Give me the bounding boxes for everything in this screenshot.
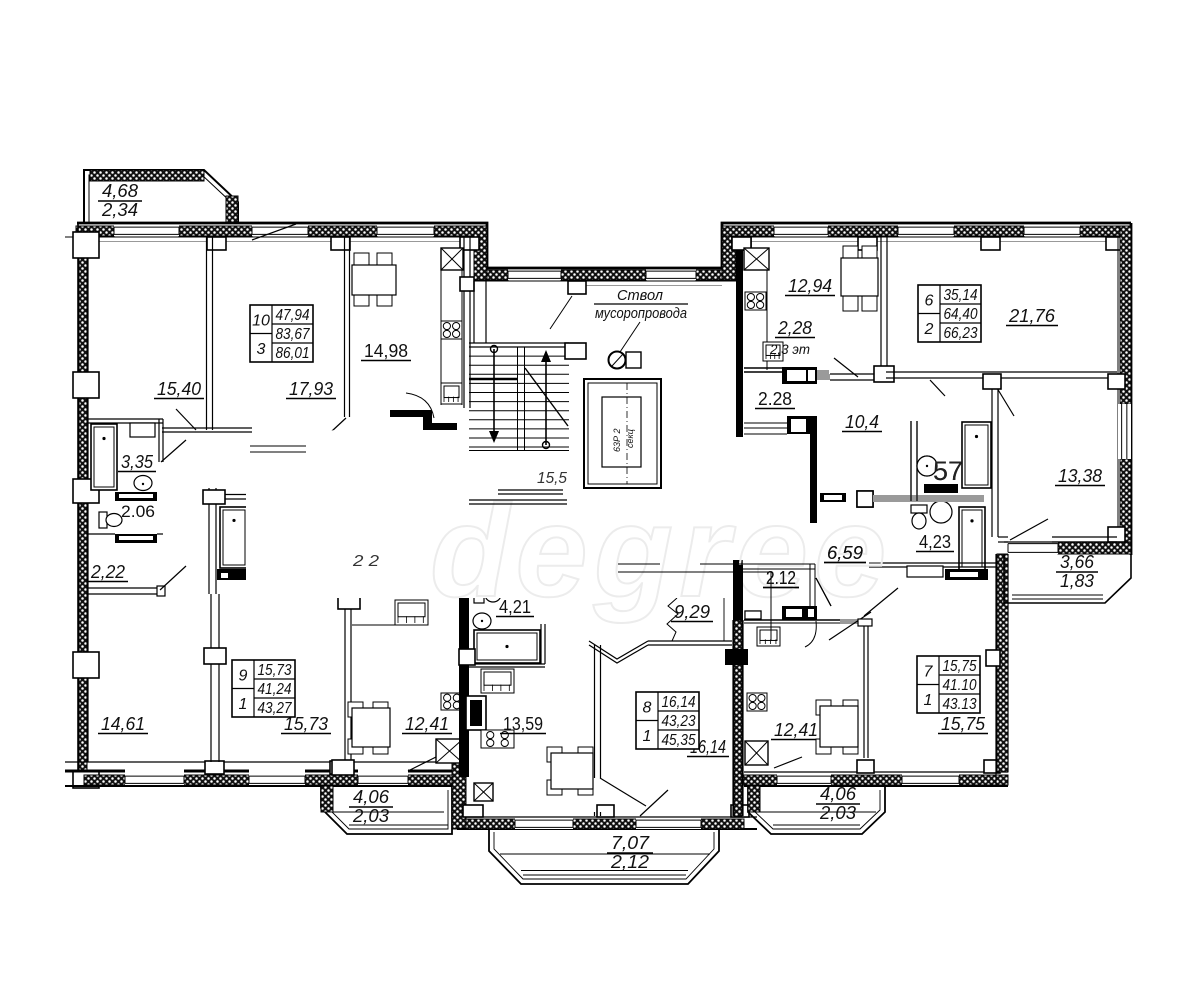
svg-text:1: 1	[924, 692, 933, 709]
svg-text:4,06: 4,06	[820, 784, 857, 804]
svg-text:секц: секц	[625, 429, 635, 448]
svg-text:3: 3	[257, 341, 266, 358]
svg-text:10,4: 10,4	[845, 412, 879, 432]
svg-text:Ствол: Ствол	[617, 287, 664, 304]
svg-text:57: 57	[933, 456, 963, 486]
svg-text:64,40: 64,40	[944, 306, 978, 323]
svg-text:2,28: 2,28	[777, 318, 812, 338]
svg-text:2,22: 2,22	[90, 562, 125, 582]
svg-text:2 2: 2 2	[352, 553, 379, 570]
svg-text:7,07: 7,07	[611, 833, 650, 853]
svg-text:43,23: 43,23	[662, 713, 696, 730]
svg-text:2,3 эт: 2,3 эт	[769, 341, 810, 357]
svg-text:13,38: 13,38	[1058, 466, 1102, 486]
svg-text:86,01: 86,01	[276, 345, 310, 362]
svg-text:16,14: 16,14	[662, 694, 696, 711]
svg-text:4,06: 4,06	[353, 787, 390, 807]
svg-text:4,68: 4,68	[102, 181, 138, 201]
svg-text:1,83: 1,83	[1060, 571, 1094, 591]
svg-text:3,66: 3,66	[1060, 552, 1095, 572]
svg-text:2.12: 2.12	[766, 568, 796, 588]
svg-text:14,98: 14,98	[364, 341, 408, 361]
svg-text:15,75: 15,75	[941, 714, 986, 734]
svg-text:9: 9	[239, 667, 248, 684]
svg-text:43.13: 43.13	[943, 696, 977, 713]
svg-text:2.06: 2.06	[121, 502, 155, 521]
svg-text:6: 6	[925, 292, 934, 309]
svg-text:10: 10	[252, 312, 270, 329]
svg-text:35,14: 35,14	[944, 287, 978, 304]
svg-text:15,40: 15,40	[157, 379, 201, 399]
svg-text:2,03: 2,03	[352, 806, 389, 826]
svg-text:63Р 2: 63Р 2	[612, 428, 622, 452]
svg-text:45,35: 45,35	[662, 732, 696, 749]
svg-text:13,59: 13,59	[503, 714, 543, 734]
svg-text:41,24: 41,24	[258, 681, 292, 698]
svg-text:мусоропровода: мусоропровода	[595, 305, 687, 322]
svg-text:2.28: 2.28	[758, 389, 792, 409]
svg-text:17,93: 17,93	[289, 379, 333, 399]
svg-text:8: 8	[643, 699, 652, 716]
svg-text:66,23: 66,23	[944, 325, 978, 342]
svg-text:12,94: 12,94	[788, 276, 832, 296]
svg-text:47,94: 47,94	[276, 307, 310, 324]
svg-text:83,67: 83,67	[276, 326, 311, 343]
svg-text:41.10: 41.10	[943, 677, 977, 694]
svg-text:21,76: 21,76	[1008, 306, 1056, 326]
svg-text:1: 1	[239, 696, 248, 713]
svg-text:2,34: 2,34	[101, 200, 138, 220]
svg-text:2,03: 2,03	[819, 803, 856, 823]
svg-text:15,5: 15,5	[537, 470, 567, 487]
svg-text:3,35: 3,35	[121, 452, 154, 472]
svg-text:12,41: 12,41	[405, 714, 449, 734]
svg-text:14,61: 14,61	[101, 714, 145, 734]
svg-text:7: 7	[924, 663, 934, 680]
svg-text:43,27: 43,27	[258, 700, 293, 717]
svg-text:4,23: 4,23	[919, 532, 951, 552]
svg-text:2: 2	[924, 321, 934, 338]
svg-text:1: 1	[643, 728, 652, 745]
svg-text:15,75: 15,75	[943, 658, 977, 675]
svg-text:15,73: 15,73	[258, 662, 292, 679]
svg-text:12,41: 12,41	[774, 720, 818, 740]
svg-text:2,12: 2,12	[610, 852, 649, 872]
svg-text:6,59: 6,59	[827, 543, 863, 563]
